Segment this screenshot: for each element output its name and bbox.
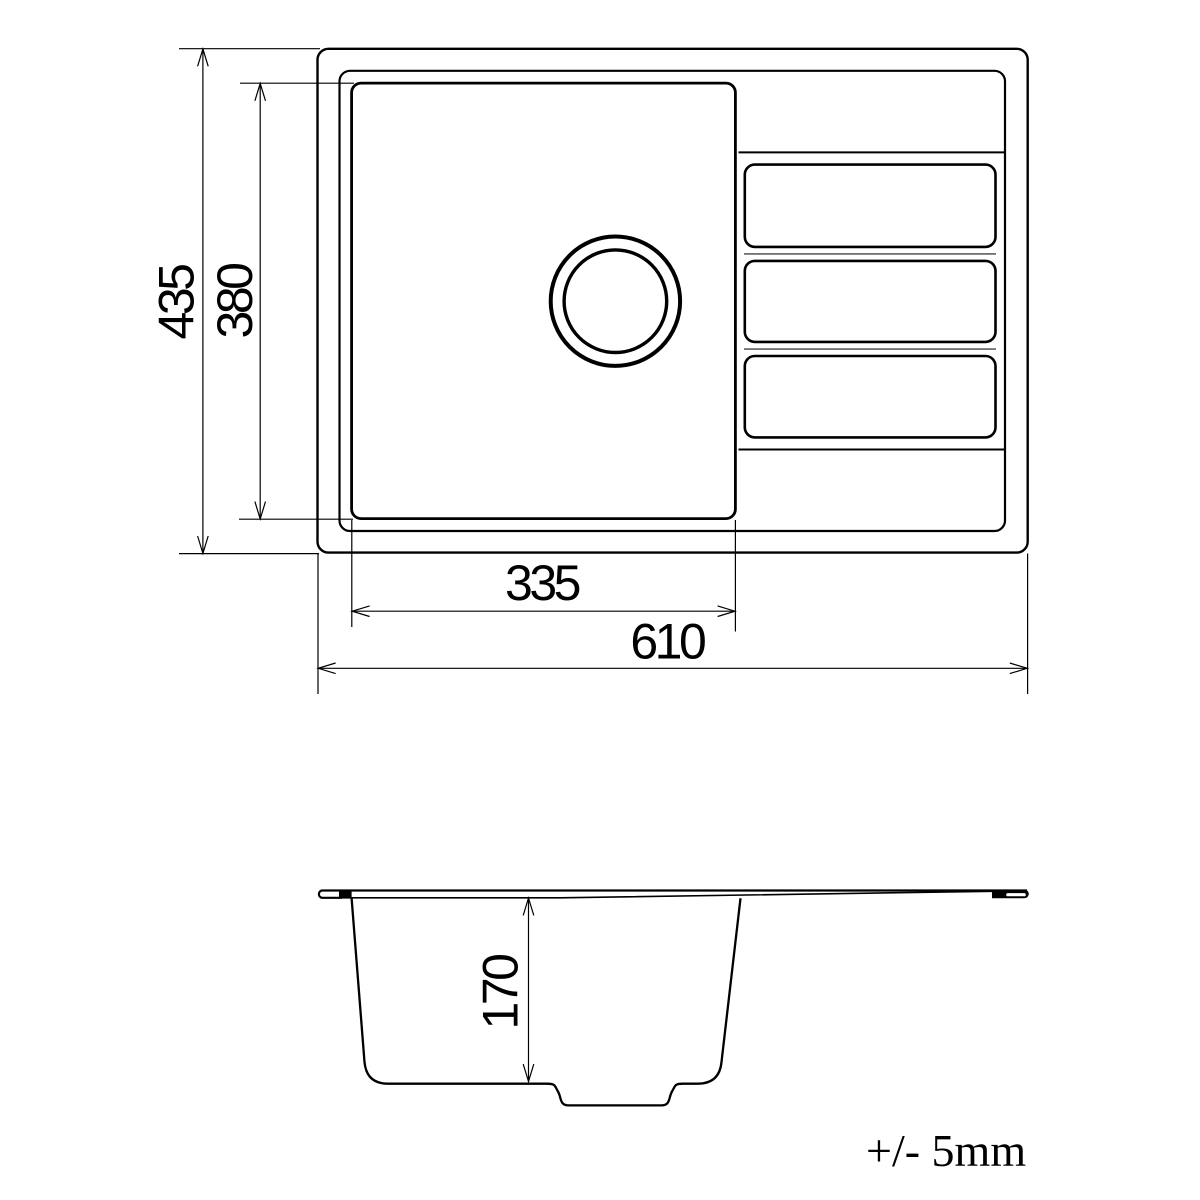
svg-text:335: 335 (505, 555, 580, 611)
svg-text:170: 170 (473, 955, 529, 1030)
svg-text:435: 435 (149, 265, 205, 340)
svg-text:610: 610 (630, 614, 705, 670)
svg-text:380: 380 (207, 264, 263, 339)
svg-text:+/- 5mm: +/- 5mm (866, 1125, 1026, 1176)
